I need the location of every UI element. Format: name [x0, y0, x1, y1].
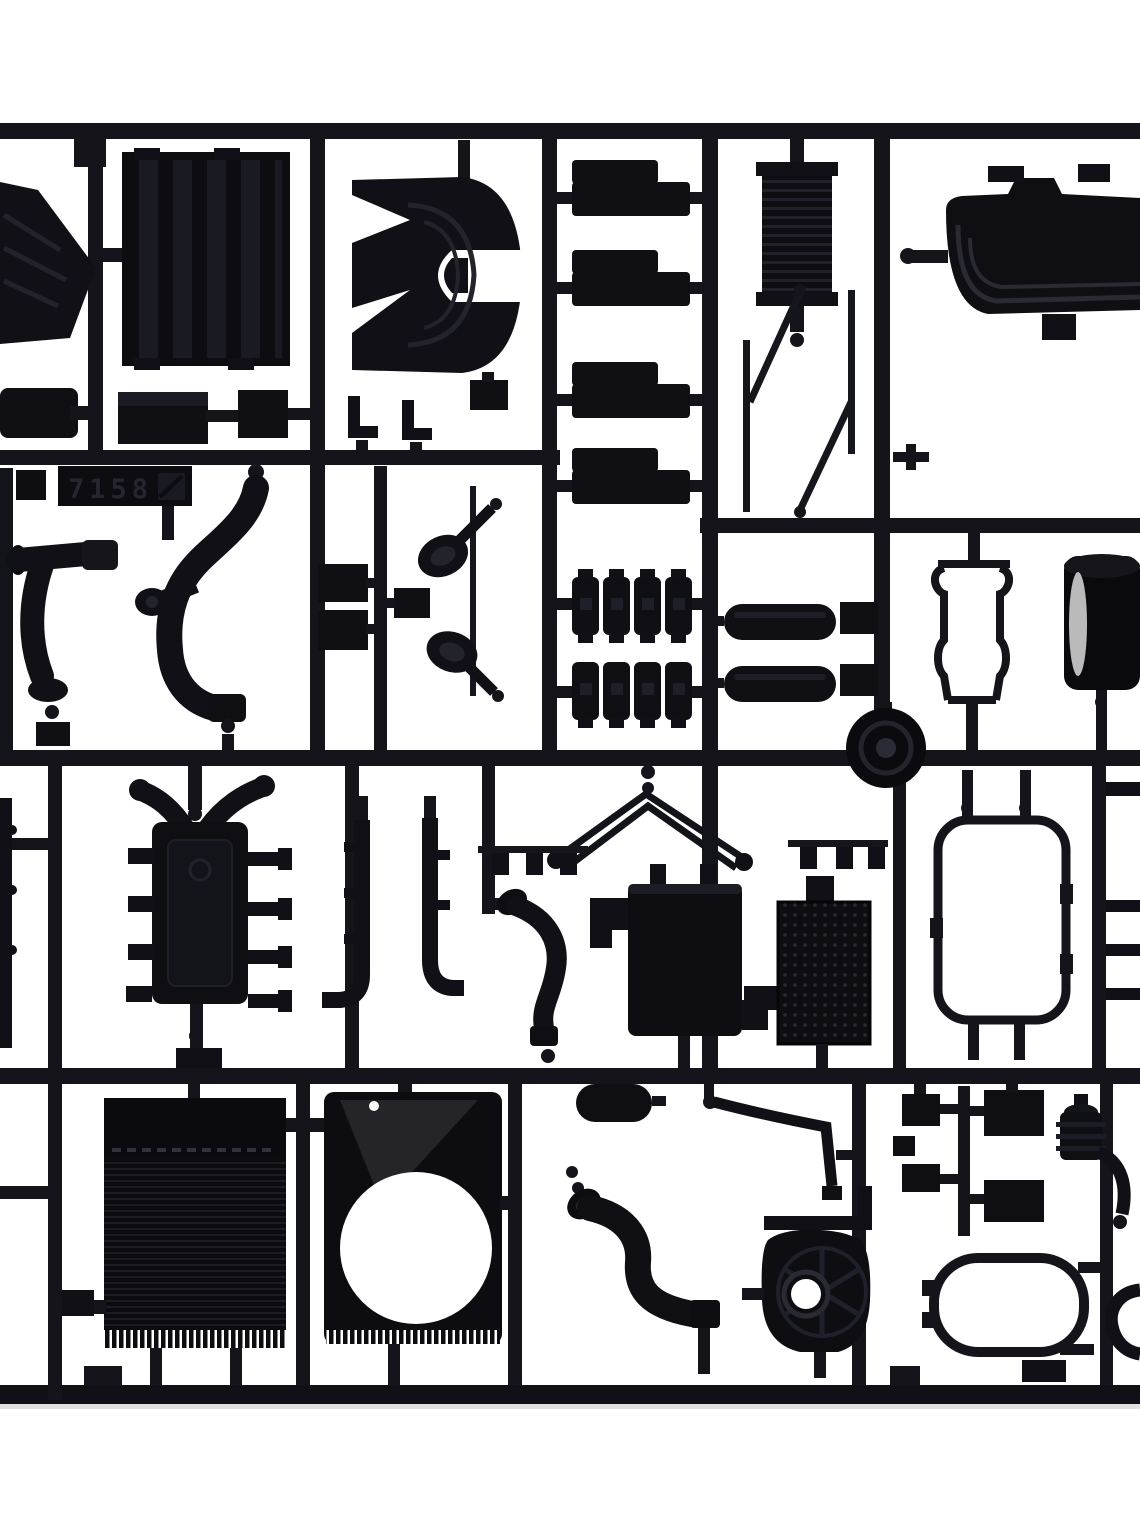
- sprue-photo: 7158: [0, 0, 1140, 1520]
- tag-code: 7158: [68, 474, 153, 505]
